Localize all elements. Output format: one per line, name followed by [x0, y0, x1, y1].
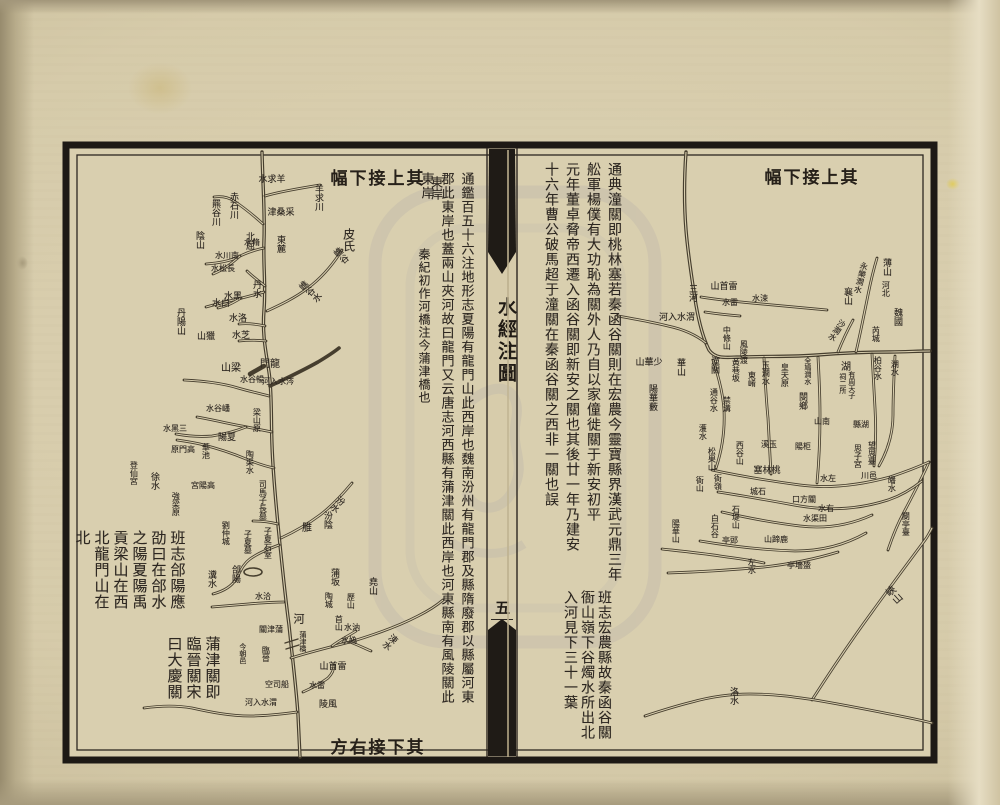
map-label: 水黑三 [163, 425, 187, 433]
map-label: 津桑采 [267, 209, 294, 218]
map-label: 華山 [675, 358, 684, 376]
map-label: 陵風 [319, 701, 337, 710]
annotation-column: 臨晉關宋 [186, 636, 201, 700]
map-drawing [0, 0, 1000, 805]
map-label: 魏國 [892, 308, 901, 326]
map-label: 思子宮 [853, 444, 861, 468]
map-label: 河入水渭 [659, 314, 695, 323]
annotation-column: 入河見下三十一葉 [563, 590, 577, 710]
map-label: 原門高 [171, 446, 195, 454]
map-label: 水松長 [211, 265, 235, 273]
map-label: 山首雷 [710, 283, 737, 292]
map-label: 水左 [820, 475, 836, 483]
map-label: 陽華藪 [647, 384, 656, 411]
annotation-column: 班志宏農縣故秦函谷關 [597, 590, 611, 740]
map-label: 玉澗水 [761, 361, 769, 385]
map-label: 亭郖 [722, 537, 738, 545]
annotation-column: 通鑑百五十六注地形志夏陽有龍門山此西岸也魏南汾州有龍門郡及縣隋廢郡以縣屬河東 [460, 172, 473, 704]
map-label: 中條山 [722, 326, 730, 350]
map-label: 登仙宮 [129, 461, 137, 485]
map-label: 空司船 [265, 681, 289, 689]
map-label: 三河 [687, 284, 696, 302]
scanned-paper-sheet: 水經注圖 五 羊求川水求羊津桑采赤石川羆谷川陰山東麓北屈水脩水川南水松長丹水皮氏… [0, 0, 1000, 805]
continuation-banner: 幅下接上其 [765, 163, 860, 188]
map-label: 水脩 [244, 239, 260, 247]
map-label: 山獵 [197, 333, 215, 342]
fold-ornament [488, 149, 516, 756]
map-label: 山南 [814, 418, 830, 426]
map-label: 皇天原 [780, 363, 788, 387]
map-label: 梁山原 [252, 408, 260, 432]
map-label: 陽華山 [671, 519, 679, 543]
map-label: 水白 [212, 300, 230, 309]
annotation-column: 秦紀初作河橋注今蒲津橋也 [418, 248, 430, 404]
map-label: 塞林桃 [753, 467, 780, 476]
annotation-column: 之陽夏陽禹 [132, 530, 147, 610]
map-label: 子夏石室 [263, 527, 271, 559]
map-label: 衙嶺 [713, 474, 721, 490]
map-label: 芮城 [871, 326, 879, 342]
map-label: 陽夏 [218, 434, 236, 443]
annotation-column: 郡此東岸也蓋兩山夾河故曰龍門又云唐志河西縣有蒲津關此西岸也河東縣南有風陵關此 [440, 172, 453, 704]
map-label: 望思臺 [867, 441, 875, 465]
map-label: 縣湖 [853, 421, 869, 429]
map-label: 石堤山 [731, 505, 739, 529]
map-label: 山首雷 [319, 663, 346, 672]
map-label: 河入水涔 [262, 378, 294, 386]
map-label: 赤石川 [228, 192, 237, 219]
map-label: 今朝邑 [239, 643, 246, 664]
map-label: 水川南 [215, 252, 239, 260]
map-label: 風陵渡 [739, 340, 747, 364]
map-label: 濩水 [698, 424, 706, 440]
map-label: 溪玉 [761, 441, 777, 449]
annotation-column: 蒲津關即 [205, 636, 220, 700]
map-label: 郃陽 [230, 565, 239, 583]
map-label: 湖 [838, 361, 849, 371]
map-label: 水求羊 [258, 176, 285, 185]
map-label: 左水 [747, 558, 755, 574]
map-label: 汾陰 [322, 511, 331, 529]
map-label: 蒲坂 [329, 568, 338, 586]
map-label: 河北 [881, 281, 889, 297]
map-label: 潼關 [709, 356, 718, 374]
map-label: 湖水 [890, 360, 898, 376]
map-label: 華池 [201, 443, 209, 459]
annotation-column: 北龍門山在 [94, 530, 109, 610]
map-label: 首山 [334, 615, 342, 631]
map-label: 司馬子長墓 [258, 480, 266, 520]
map-label: 全鳩澗水 [804, 357, 811, 385]
map-label: 河入水渭 [245, 699, 277, 707]
annotation-column: 曰大慶關 [167, 636, 182, 700]
map-label: 薄山 [881, 258, 890, 276]
map-label: 水右 [818, 505, 834, 513]
map-label: 皮氏 [342, 228, 355, 252]
map-label: 陽柜 [795, 443, 811, 451]
annotation-column: 衙山嶺下谷燭水所出北 [580, 590, 594, 740]
map-label: 水汭 [344, 624, 360, 632]
map-label: 水雷 [722, 299, 738, 307]
map-label: 水媯 [341, 637, 357, 645]
map-label: 水涑 [752, 295, 768, 303]
map-label: 口方關 [792, 496, 816, 504]
leaf-number-rule [491, 618, 513, 620]
map-label: 松果山 [707, 447, 715, 471]
continuation-banner: 方右接下其 [331, 733, 426, 758]
map-label: 瀵水 [206, 570, 215, 588]
map-label: 劉仲城 [221, 521, 229, 545]
map-label: 關津蒲 [259, 626, 283, 634]
map-label: 水雷 [309, 682, 325, 690]
map-label: 陶城 [324, 592, 332, 608]
annotation-column: 元年董卓脅帝西遷入函谷關即新安之關也其後廿一年乃建安 [565, 162, 579, 552]
map-label: 徐水 [149, 472, 158, 490]
map-label: 水洛 [229, 315, 247, 324]
map-label: 白石谷 [710, 514, 718, 538]
map-label: 亭墻盛 [787, 562, 811, 570]
map-label: 蒲津橋 [299, 631, 306, 652]
map-label: 丹陽山 [175, 308, 184, 335]
map-label: 陶渠水 [245, 450, 253, 474]
map-label: 宮陽高 [191, 482, 215, 490]
map-label: 閿鄉 [797, 392, 806, 410]
map-label: 東崤 [747, 371, 755, 387]
map-label: 丹水 [251, 280, 260, 298]
annotation-column: 十六年曹公破馬超于潼關在秦函谷關之西非一關也誤 [544, 162, 558, 507]
map-label: 水芝 [232, 332, 250, 341]
map-label: 皤水 [887, 476, 895, 492]
map-label: 山梁 [221, 364, 241, 375]
map-label: 通谷水 [709, 388, 717, 412]
map-label: 洛水 [728, 687, 737, 705]
map-label: 襄山 [842, 287, 851, 305]
map-label: 水谷暢 [240, 376, 264, 384]
map-label: 衙山 [695, 476, 703, 492]
map-label: 強梁原 [171, 492, 179, 516]
map-label: 東麓 [275, 235, 284, 253]
map-label: 禁溝 [722, 396, 730, 412]
annotation-column: 貢梁山在西 [113, 530, 128, 610]
continuation-banner: 幅下接上其 [331, 164, 426, 189]
map-label: 水洽 [255, 593, 271, 601]
map-label: 有周天子 [848, 371, 855, 399]
map-label: 陰山 [194, 231, 203, 249]
map-label: 河 [293, 613, 305, 624]
map-label: 城石 [750, 488, 766, 496]
map-label: 門龍 [260, 360, 280, 371]
annotation-column: 舩軍楊僕有大功恥為關外人乃自以家僮徙關于新安初平 [586, 162, 600, 522]
fold-crease [507, 150, 509, 757]
map-label: 西谷山 [735, 441, 743, 465]
map-label: 水谷嶓 [206, 405, 230, 413]
map-label: 歷山 [346, 593, 354, 609]
map-label: 羊求川 [313, 184, 322, 211]
map-label: 山蹄鹿 [764, 536, 788, 544]
map-label: 堯山 [367, 577, 376, 595]
map-label: 川邑 [861, 472, 877, 480]
annotation-column: 劭曰在郃水 [151, 530, 166, 610]
map-label: 脽 [299, 522, 310, 532]
map-label: 山華少 [635, 359, 662, 368]
map-label: 黃巷坂 [731, 358, 739, 382]
annotation-column: 班志郃陽應 [170, 530, 185, 610]
river-lines [144, 152, 932, 757]
map-label: 水渠田 [803, 515, 827, 523]
map-label: 柏谷水 [873, 356, 881, 380]
map-label: 閿亭臺 [901, 512, 909, 536]
map-label: 臨晉 [261, 646, 269, 662]
map-label: 羆谷川 [210, 199, 219, 226]
annotation-column: 北 [75, 530, 90, 546]
map-label: 祠二所 [839, 373, 846, 394]
annotation-column: 通典潼關即桃林塞若秦函谷關則在宏農今靈寶縣界漢武元鼎三年 [607, 162, 621, 582]
map-label: 子夏墓 [243, 530, 251, 554]
